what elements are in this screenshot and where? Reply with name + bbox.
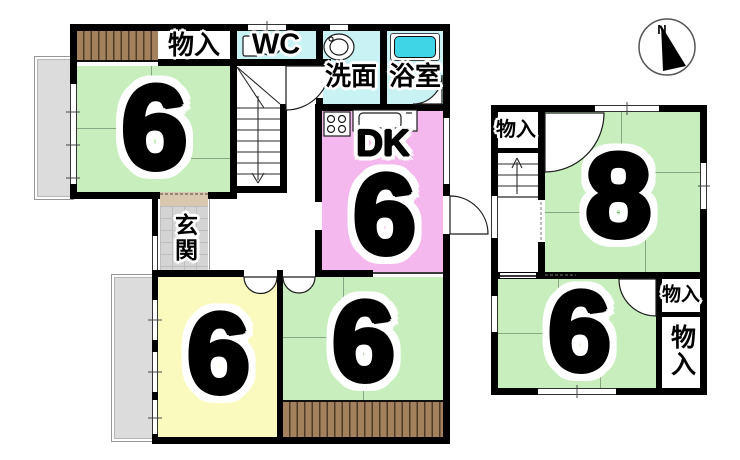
entrance-label: 玄関 [173, 213, 196, 263]
dk-size-label: 6 [353, 159, 412, 271]
window [491, 296, 498, 332]
stairs-2f [497, 158, 538, 194]
room8-size-label: 8 [586, 137, 649, 255]
compass-circle [639, 19, 695, 75]
stairs-landing-line [497, 196, 538, 198]
wc-label: WC [252, 31, 300, 60]
wall [152, 437, 450, 444]
storage-nw-label: 物入 [168, 32, 220, 58]
closet-s [283, 400, 443, 437]
wall [662, 312, 700, 317]
floor-plan: N 6 物入 WC 洗面 浴室 DK 6 玄関 6 6 8 6 物入 物入 物入 [0, 0, 740, 460]
veranda-northwest [34, 56, 74, 200]
window [152, 400, 158, 434]
wall [315, 104, 322, 202]
room-s-size-label: 6 [332, 286, 391, 398]
window [443, 118, 450, 184]
washroom-label: 洗面 [325, 63, 377, 89]
entrance-sliding-door [152, 236, 158, 270]
bathroom-label: 浴室 [389, 63, 441, 89]
closet-nw [77, 31, 158, 62]
room-nw-size-label: 6 [122, 69, 185, 187]
stairs-1f [237, 67, 280, 183]
window [595, 105, 659, 112]
wall [538, 112, 545, 278]
window [152, 300, 158, 340]
compass-needle [661, 25, 686, 71]
sliding-door [538, 200, 545, 242]
room6-2f-size-label: 6 [548, 276, 607, 388]
compass-north-label: N [657, 22, 666, 37]
wall [277, 270, 283, 443]
wall [315, 104, 450, 111]
storage-2f-nw-label: 物入 [496, 120, 536, 140]
wall [700, 105, 707, 395]
wall [280, 104, 287, 193]
window [152, 352, 158, 392]
bathtub [394, 36, 436, 58]
wall [443, 24, 450, 444]
entrance-step [160, 192, 208, 206]
storage-2f-small-label: 物入 [662, 286, 700, 305]
wall [230, 186, 287, 193]
room-sw-size-label: 6 [187, 298, 246, 410]
window [330, 24, 348, 31]
door-opening [443, 196, 450, 234]
compass: N [639, 19, 695, 75]
wall [230, 24, 237, 199]
window [70, 84, 77, 184]
storage-2f-large-label: 物入 [669, 324, 694, 378]
wall [152, 270, 244, 277]
window [491, 196, 498, 238]
back-door-arc [450, 196, 488, 234]
window [700, 163, 707, 209]
door-opening [316, 70, 323, 98]
entrance-edge-line [209, 199, 210, 270]
wall [380, 24, 387, 110]
veranda-southwest [111, 274, 157, 442]
wall [497, 148, 538, 153]
sliding-door-line [500, 275, 536, 277]
